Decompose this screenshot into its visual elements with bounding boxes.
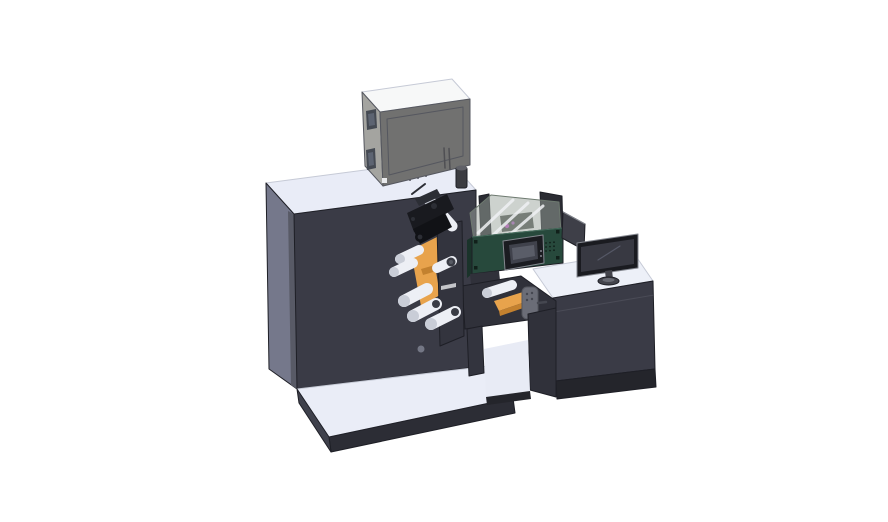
head-knob xyxy=(411,217,415,221)
roller-end xyxy=(425,318,437,330)
electrical-box-window-upper-glass xyxy=(368,113,375,126)
panel-bolt xyxy=(474,266,478,270)
cad-render-viewport xyxy=(0,0,888,522)
electrical-box-window-lower-glass xyxy=(368,152,374,166)
head-hub-inner xyxy=(418,235,423,240)
roller-end xyxy=(398,295,410,307)
roller-core-inner xyxy=(449,260,453,264)
bracket-hole xyxy=(526,293,528,295)
panel-bolt xyxy=(556,256,560,260)
hmi-button xyxy=(540,255,542,257)
exhaust-cylinder xyxy=(456,166,467,189)
bracket-hole xyxy=(531,298,533,300)
bracket-hole xyxy=(526,299,528,301)
inspection-unit xyxy=(467,192,563,278)
bracket-hole xyxy=(531,292,533,294)
roller-end xyxy=(407,310,419,322)
bracket-pin xyxy=(538,302,546,303)
latch-square xyxy=(382,178,387,183)
hmi-button xyxy=(540,250,542,252)
vent-slot xyxy=(449,149,450,170)
frame-leg-left xyxy=(467,326,484,376)
desk-front-face xyxy=(553,281,655,381)
roller-core xyxy=(451,308,459,316)
front-panel-knob xyxy=(418,346,425,353)
monitor-base-top xyxy=(603,278,615,282)
roller-end xyxy=(389,267,399,277)
roller-end xyxy=(482,288,492,298)
roller-core xyxy=(432,300,440,308)
frame-leg-right xyxy=(528,308,556,397)
shelf-interior xyxy=(484,340,530,397)
machine-illustration xyxy=(0,0,888,522)
vent-slot xyxy=(444,148,445,168)
panel-bolt xyxy=(556,230,560,234)
inspection-panel-left-edge xyxy=(467,237,472,278)
winder-door-plate xyxy=(437,221,464,346)
cylinder-cap xyxy=(456,166,467,171)
speaker-hole-grid xyxy=(545,241,555,252)
head-knob xyxy=(431,203,437,209)
panel-bolt xyxy=(474,240,478,244)
